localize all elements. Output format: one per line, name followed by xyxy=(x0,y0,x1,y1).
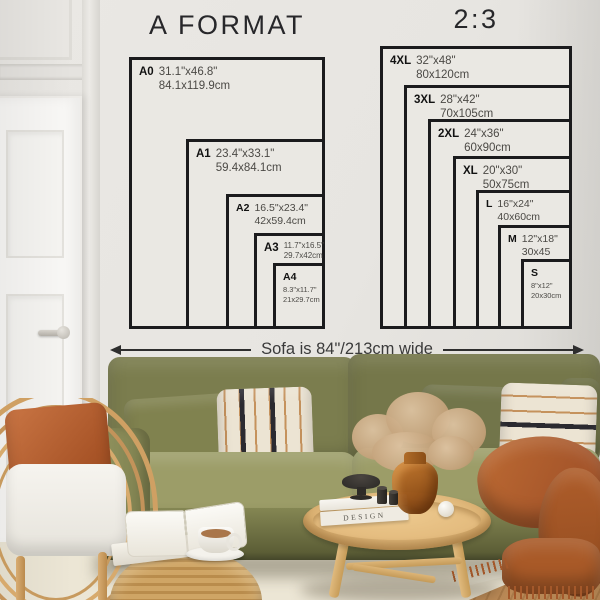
dried-flowers xyxy=(428,436,474,470)
chair-leg xyxy=(16,556,25,600)
size-box-s: S 8"x12"20x30cm xyxy=(521,259,572,329)
size-inches: 12"x18" xyxy=(522,233,558,246)
ratio-title: 2:3 xyxy=(380,4,572,35)
wall-panel xyxy=(0,0,72,60)
black-candle-holder xyxy=(377,488,387,504)
size-box-a4: A4 8.3"x11.7"21x29.7cm xyxy=(273,263,325,329)
size-cm: 40x60cm xyxy=(497,211,540,224)
size-cm: 80x120cm xyxy=(416,68,469,82)
right-arrow xyxy=(443,349,582,351)
size-code: M xyxy=(508,233,517,259)
bowl-foot xyxy=(350,495,372,500)
size-code: XL xyxy=(463,164,478,193)
size-inches: 16"x24" xyxy=(497,198,540,211)
size-inches: 16.5"x23.4" xyxy=(254,202,308,215)
size-code: 4XL xyxy=(390,54,411,83)
left-arrow xyxy=(112,349,251,351)
size-code: 2XL xyxy=(438,127,459,156)
white-sphere xyxy=(438,501,454,517)
size-cm: 84.1x119.9cm xyxy=(159,79,230,93)
door-panel-upper xyxy=(6,130,64,258)
a-format-title: A FORMAT xyxy=(129,10,325,41)
size-code: A4 xyxy=(283,271,320,284)
black-pedestal-bowl xyxy=(342,474,380,502)
size-code: A2 xyxy=(236,202,249,228)
size-cm: 60x90cm xyxy=(464,141,511,155)
size-cm: 59.4x84.1cm xyxy=(216,161,282,175)
size-code: 3XL xyxy=(414,93,435,122)
size-inches: 24"x36" xyxy=(464,127,511,141)
size-inches: 23.4"x33.1" xyxy=(216,147,282,161)
size-cm: 30x45 xyxy=(522,246,558,259)
book-page-left xyxy=(124,510,188,557)
size-inches: 32"x48" xyxy=(416,54,469,68)
black-candle-holder xyxy=(389,492,398,505)
chair-seat-cushion xyxy=(6,464,126,556)
size-cm: 21x29.7cm xyxy=(283,295,320,304)
bowl-stem xyxy=(357,487,366,495)
size-code: A0 xyxy=(139,65,154,94)
throw-fringe xyxy=(508,586,598,599)
coffee-cup xyxy=(198,527,234,553)
size-inches: 11.7"x16.5" xyxy=(284,241,324,251)
size-cm: 42x59.4cm xyxy=(254,215,308,228)
size-inches: 20"x30" xyxy=(483,164,530,178)
size-inches: 31.1"x46.8" xyxy=(159,65,230,79)
size-inches: 28"x42" xyxy=(440,93,493,107)
size-code: A3 xyxy=(264,241,279,260)
size-code: L xyxy=(486,198,492,224)
door-handle xyxy=(38,330,68,336)
size-inches: 8.3"x11.7" xyxy=(283,285,320,294)
size-cm: 29.7x42cm xyxy=(284,251,324,261)
living-room-size-guide: A FORMAT A0 31.1"x46.8"84.1x119.9cm A1 2… xyxy=(0,0,600,600)
size-code: S xyxy=(531,267,567,280)
size-code: A1 xyxy=(196,147,211,176)
size-inches: 8"x12" xyxy=(531,281,567,290)
wall-molding xyxy=(0,64,84,80)
amber-glass-vase xyxy=(392,460,438,514)
chair-leg xyxy=(98,552,107,600)
size-cm: 20x30cm xyxy=(531,291,567,300)
